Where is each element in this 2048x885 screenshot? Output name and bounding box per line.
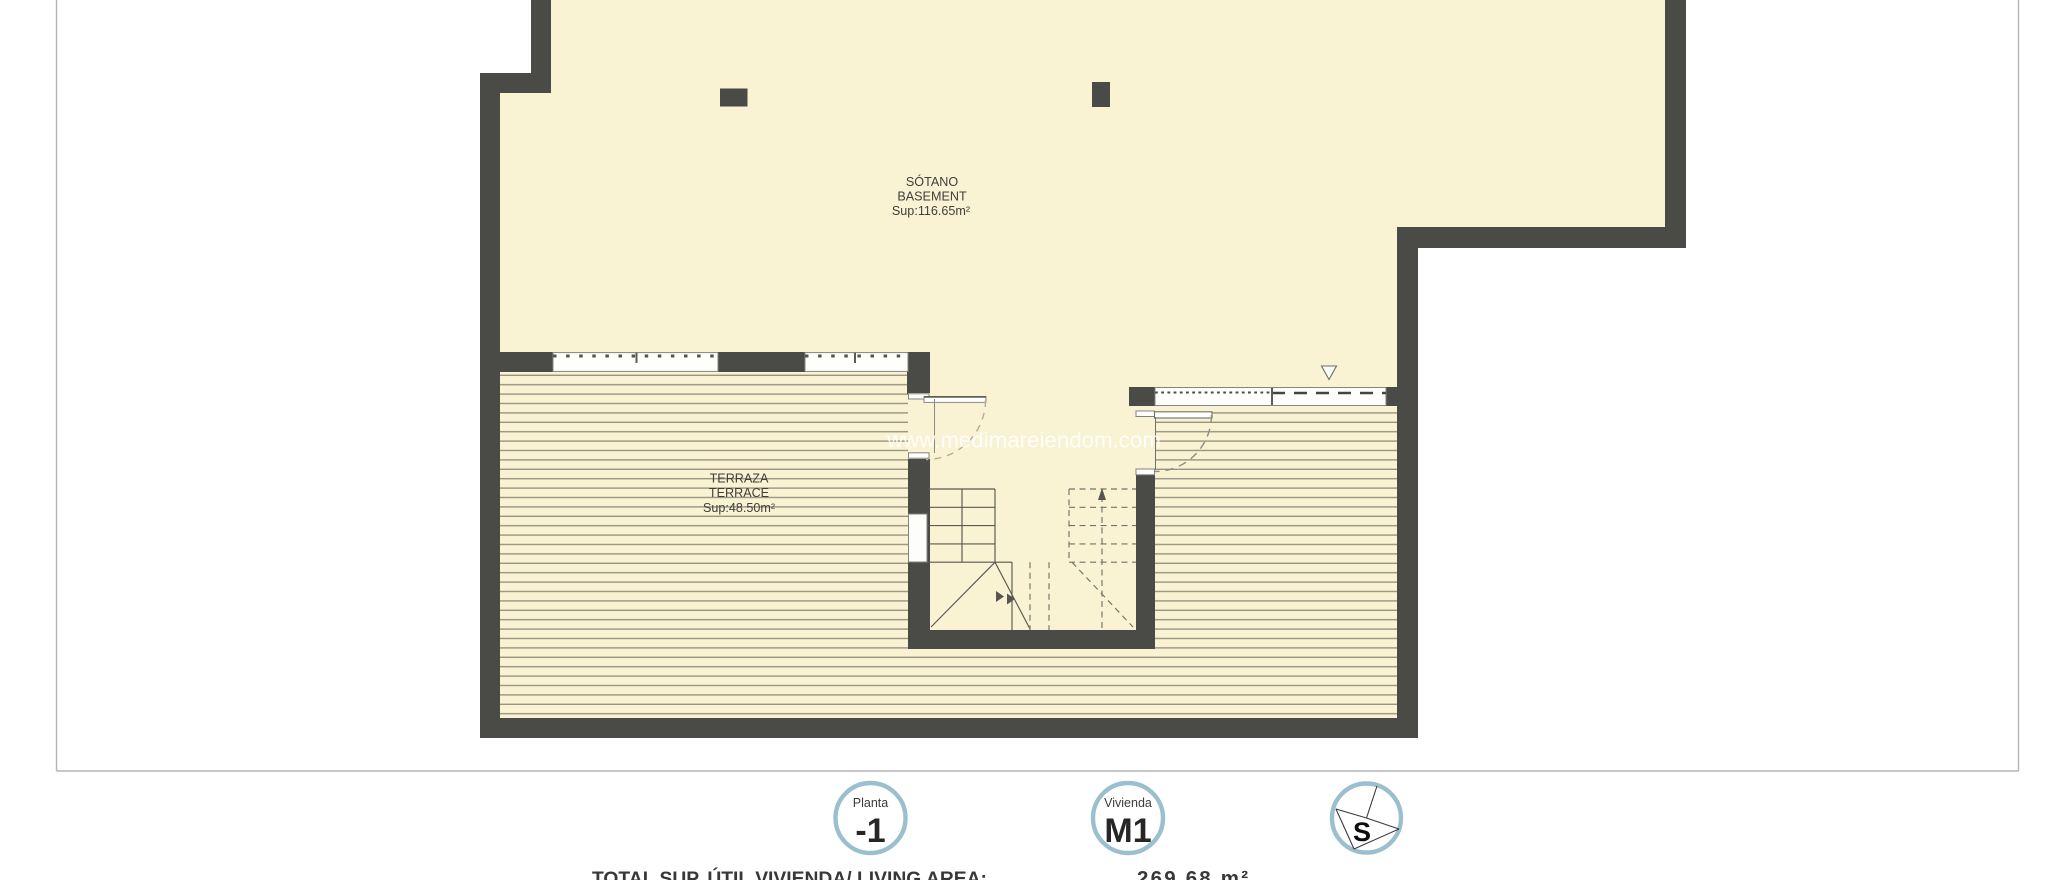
svg-text:S: S <box>1353 817 1371 847</box>
svg-text:www.medimareiendom.com: www.medimareiendom.com <box>886 428 1161 453</box>
svg-text:TERRACE: TERRACE <box>709 486 769 500</box>
svg-text:-1: -1 <box>855 812 885 850</box>
svg-text:Planta: Planta <box>853 796 888 810</box>
svg-text:Sup:48.50m²: Sup:48.50m² <box>703 501 775 515</box>
svg-text:TOTAL SUP. ÚTIL VIVIENDA/ LIVI: TOTAL SUP. ÚTIL VIVIENDA/ LIVING AREA: <box>592 866 987 880</box>
svg-text:269.68 m²: 269.68 m² <box>1137 867 1250 880</box>
svg-text:BASEMENT: BASEMENT <box>897 190 967 204</box>
svg-text:TERRAZA: TERRAZA <box>710 472 769 486</box>
svg-text:M1: M1 <box>1104 812 1151 850</box>
svg-text:Vivienda: Vivienda <box>1104 796 1152 810</box>
svg-text:Sup:116.65m²: Sup:116.65m² <box>892 204 970 218</box>
svg-text:SÓTANO: SÓTANO <box>906 174 958 189</box>
